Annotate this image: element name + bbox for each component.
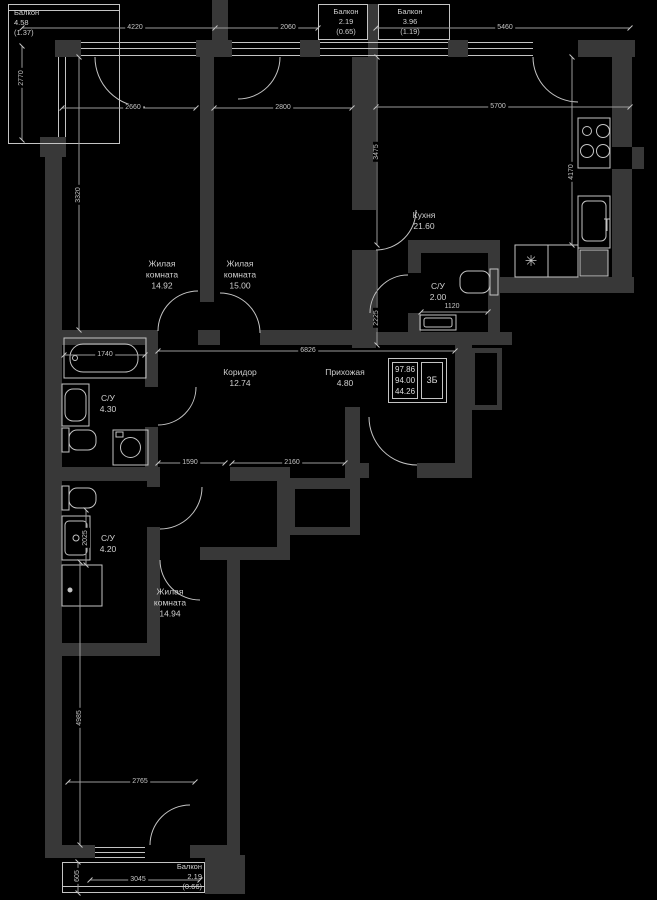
room-area: 2.00	[430, 292, 447, 303]
area-living: 44.26	[395, 386, 415, 397]
room-label-kitchen: Кухня 21.60	[413, 210, 436, 232]
room-area: 4.30	[100, 404, 117, 415]
room-label-bathroom-2: С/У 4.20	[100, 533, 117, 555]
dimension-text: 4985	[76, 708, 84, 728]
outline-layer	[9, 5, 534, 893]
dimension-text: 2660	[123, 104, 143, 112]
dimension-text: 3320	[75, 185, 83, 205]
room-name: Жилая	[154, 587, 186, 598]
balcony-label-top-left: Балкон 4.58 (1.37)	[14, 8, 39, 38]
room-label-living-room-3: Жилая комната 14.94	[154, 587, 186, 620]
dimension-text: 2800	[273, 104, 293, 112]
dimension-text: 6826	[298, 347, 318, 355]
dimension-text: 2160	[282, 459, 302, 467]
room-name: Жилая	[146, 259, 178, 270]
room-area: 14.94	[154, 609, 186, 620]
apartment-info-box: 97.86 94.00 44.26 3Б	[388, 358, 447, 403]
room-name: Коридор	[223, 367, 257, 378]
dimension-text: 5460	[495, 24, 515, 32]
room-area: 4.80	[325, 378, 364, 389]
dimension-text: 4220	[125, 24, 145, 32]
room-name: С/У	[100, 393, 117, 404]
dimension-text: 4170	[568, 162, 576, 182]
room-area: 12.74	[223, 378, 257, 389]
room-name: Жилая	[224, 259, 256, 270]
balcony-label-top-mid: Балкон 2.19 (0.65)	[333, 7, 358, 37]
room-area: 4.20	[100, 544, 117, 555]
dimension-text: 2060	[278, 24, 298, 32]
dimension-text: 2225	[373, 308, 381, 328]
room-name: комната	[224, 270, 256, 281]
dimension-text: 2770	[18, 68, 26, 88]
room-label-corridor: Коридор 12.74	[223, 367, 257, 389]
cooktop-icon: ✳	[525, 252, 538, 270]
dimension-text: 3475	[373, 142, 381, 162]
dimension-text: 605	[74, 868, 82, 884]
room-label-living-room-1: Жилая комната 14.92	[146, 259, 178, 292]
dimension-text: 5700	[488, 103, 508, 111]
dimension-text: 2765	[130, 778, 150, 786]
dimension-text: 3045	[128, 876, 148, 884]
room-name: комната	[146, 270, 178, 281]
room-area: 15.00	[224, 281, 256, 292]
walls-layer	[40, 0, 644, 894]
room-name: Кухня	[413, 210, 436, 221]
dimension-text: 1120	[442, 303, 461, 311]
room-area: 14.92	[146, 281, 178, 292]
room-label-wc-small: С/У 2.00	[430, 281, 447, 303]
area-no-balcony: 94.00	[395, 375, 415, 386]
room-label-hallway: Прихожая 4.80	[325, 367, 364, 389]
room-area: 21.60	[413, 221, 436, 232]
room-name: С/У	[430, 281, 447, 292]
room-name: Прихожая	[325, 367, 364, 378]
balcony-label-bottom: Балкон 2.19 (0.66)	[177, 862, 202, 892]
room-name: комната	[154, 598, 186, 609]
room-label-bathroom-1: С/У 4.30	[100, 393, 117, 415]
dimension-text: 1740	[95, 351, 115, 359]
dimension-text: 2025	[82, 528, 90, 548]
floor-plan-drawing	[0, 0, 657, 900]
doors-layer	[95, 57, 578, 845]
room-name: С/У	[100, 533, 117, 544]
area-total: 97.86	[395, 364, 415, 375]
floor-plan: Жилая комната 14.92 Жилая комната 15.00 …	[0, 0, 657, 900]
balcony-label-top-right: Балкон 3.96 (1.19)	[397, 7, 422, 37]
apartment-areas: 97.86 94.00 44.26	[392, 362, 418, 399]
apartment-type-badge: 3Б	[421, 362, 443, 399]
room-label-living-room-2: Жилая комната 15.00	[224, 259, 256, 292]
dimension-text: 1590	[180, 459, 200, 467]
